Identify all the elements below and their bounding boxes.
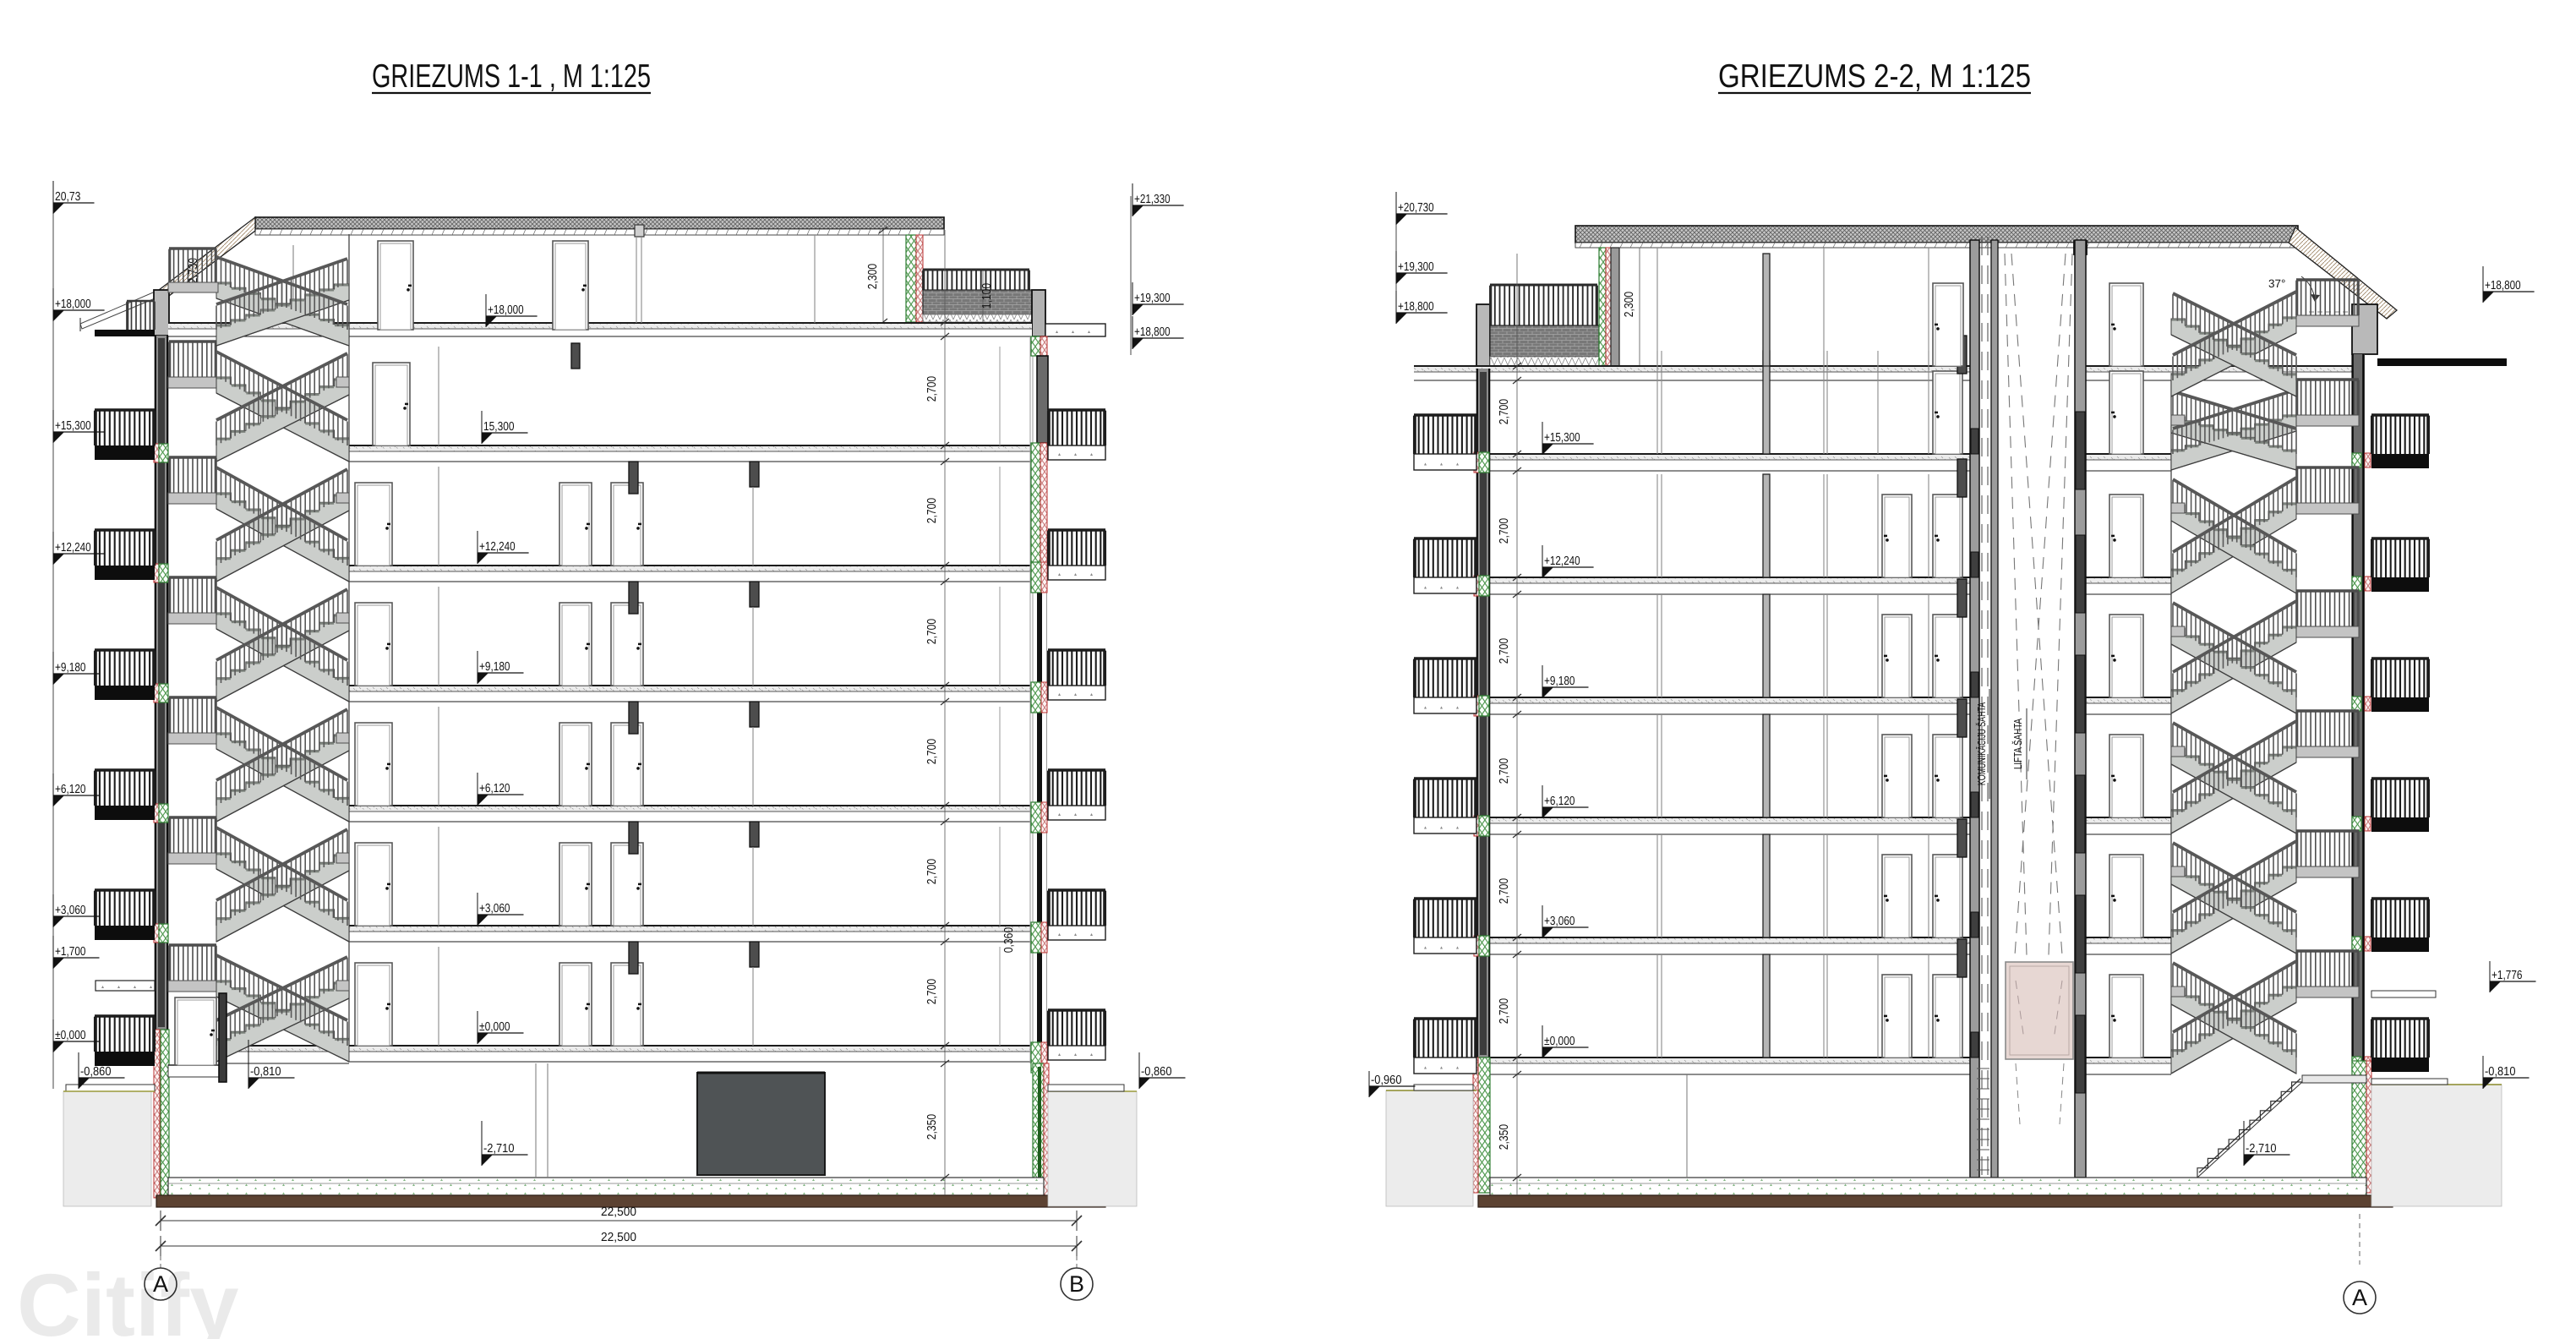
svg-text:▴: ▴ [1074,572,1077,577]
svg-text:-0,860: -0,860 [80,1065,112,1079]
svg-text:+3,060: +3,060 [1544,915,1575,928]
svg-text:▴: ▴ [1058,572,1061,577]
svg-text:37°: 37° [2268,277,2285,290]
svg-text:22,500: 22,500 [601,1231,636,1244]
svg-text:-2,710: -2,710 [483,1142,515,1156]
svg-text:KOMUNIKĀCIJU ŠAHTA: KOMUNIKĀCIJU ŠAHTA [1975,702,1988,786]
svg-text:+18,000: +18,000 [55,298,91,311]
svg-text:+15,300: +15,300 [1544,431,1580,445]
svg-text:2,700: 2,700 [925,859,939,884]
svg-text:2,700: 2,700 [1498,638,1511,664]
svg-text:2,700: 2,700 [925,739,939,764]
svg-text:▴: ▴ [1456,1066,1459,1071]
svg-text:▴: ▴ [1424,1066,1427,1071]
svg-text:2,700: 2,700 [925,619,939,644]
svg-text:2,700: 2,700 [1498,998,1511,1024]
svg-text:▴: ▴ [1074,692,1077,697]
svg-text:▴: ▴ [1090,1052,1093,1058]
svg-text:2,700: 2,700 [925,979,939,1004]
svg-text:2,350: 2,350 [1498,1124,1511,1150]
svg-text:▴: ▴ [1058,932,1061,937]
svg-text:▴: ▴ [1440,1066,1443,1071]
svg-text:▴: ▴ [1058,812,1061,817]
svg-text:+1,776: +1,776 [2491,969,2523,982]
svg-text:▴: ▴ [101,985,104,990]
svg-text:+19,300: +19,300 [1398,260,1434,274]
svg-text:20,73: 20,73 [55,190,80,204]
svg-text:▴: ▴ [1440,946,1443,951]
svg-text:▴: ▴ [134,985,136,990]
svg-text:▴: ▴ [1074,812,1077,817]
svg-text:▴: ▴ [1424,946,1427,951]
svg-text:GRIEZUMS 2-2, M 1:125: GRIEZUMS 2-2, M 1:125 [1718,58,2031,95]
svg-text:+19,300: +19,300 [1134,292,1171,305]
svg-text:▴: ▴ [1456,826,1459,831]
svg-text:▴: ▴ [1058,692,1061,697]
svg-text:▴: ▴ [1440,462,1443,467]
svg-text:-0,860: -0,860 [1141,1065,1172,1079]
svg-text:+9,180: +9,180 [1544,675,1575,688]
svg-text:▴: ▴ [1056,330,1058,335]
svg-text:▴: ▴ [1424,462,1427,467]
svg-text:▴: ▴ [1058,1052,1061,1058]
svg-text:2,739: 2,739 [187,258,200,283]
svg-text:▴: ▴ [1456,462,1459,467]
svg-text:▴: ▴ [1090,932,1093,937]
svg-text:▴: ▴ [117,985,120,990]
svg-text:+21,330: +21,330 [1134,193,1171,206]
svg-text:▴: ▴ [1090,812,1093,817]
svg-text:2,700: 2,700 [1498,878,1511,904]
svg-text:▴: ▴ [150,985,152,990]
svg-text:▴: ▴ [1456,706,1459,711]
svg-text:2,300: 2,300 [1623,292,1636,317]
svg-text:-0,810: -0,810 [250,1065,281,1079]
svg-text:15,300: 15,300 [483,420,515,434]
svg-text:▴: ▴ [1440,706,1443,711]
svg-text:2,700: 2,700 [925,376,939,402]
svg-text:▴: ▴ [1424,586,1427,591]
svg-text:+18,000: +18,000 [488,303,524,317]
svg-text:▴: ▴ [1456,946,1459,951]
svg-text:▴: ▴ [1424,826,1427,831]
svg-text:▴: ▴ [1090,452,1093,457]
svg-text:+15,300: +15,300 [55,419,91,433]
svg-text:0,360: 0,360 [1002,927,1016,953]
svg-text:+6,120: +6,120 [55,783,86,796]
svg-text:▴: ▴ [1440,826,1443,831]
svg-text:+18,800: +18,800 [2485,279,2521,292]
svg-text:▴: ▴ [1074,452,1077,457]
svg-text:2,700: 2,700 [1498,758,1511,784]
svg-text:▴: ▴ [1440,586,1443,591]
svg-text:-0,810: -0,810 [2485,1065,2516,1079]
svg-text:A: A [2352,1285,2367,1310]
svg-text:▴: ▴ [1074,1052,1077,1058]
svg-text:GRIEZUMS 1-1 , M 1:125: GRIEZUMS 1-1 , M 1:125 [372,58,651,95]
svg-text:2,700: 2,700 [925,498,939,523]
svg-text:2,700: 2,700 [1498,399,1511,424]
svg-text:▴: ▴ [1424,706,1427,711]
svg-text:+3,060: +3,060 [479,902,510,915]
svg-text:+3,060: +3,060 [55,904,86,917]
svg-text:±0,000: ±0,000 [55,1029,86,1042]
svg-text:±0,000: ±0,000 [1544,1035,1575,1048]
svg-text:▴: ▴ [1090,692,1093,697]
svg-text:2,300: 2,300 [866,264,880,289]
svg-text:▴: ▴ [1090,572,1093,577]
svg-text:2,350: 2,350 [925,1114,939,1140]
svg-text:▴: ▴ [1058,452,1061,457]
svg-text:B: B [1069,1271,1084,1297]
svg-text:▴: ▴ [1456,586,1459,591]
svg-text:-2,710: -2,710 [2246,1142,2277,1156]
svg-text:▴: ▴ [1072,330,1074,335]
svg-text:+18,800: +18,800 [1398,300,1434,314]
svg-text:+6,120: +6,120 [479,782,510,795]
svg-text:+12,240: +12,240 [1544,555,1580,568]
svg-text:▴: ▴ [1074,932,1077,937]
svg-text:+1,700: +1,700 [55,945,86,959]
svg-text:1,100: 1,100 [980,283,994,309]
svg-text:+20,730: +20,730 [1398,201,1434,215]
svg-text:+6,120: +6,120 [1544,795,1575,808]
svg-text:+9,180: +9,180 [479,660,510,674]
svg-text:Citify: Citify [17,1256,239,1339]
svg-text:±0,000: ±0,000 [479,1020,510,1034]
svg-text:+12,240: +12,240 [479,540,516,554]
svg-text:+9,180: +9,180 [55,661,86,675]
svg-text:+18,800: +18,800 [1134,325,1171,339]
svg-text:+12,240: +12,240 [55,541,91,555]
svg-text:2,700: 2,700 [1498,518,1511,544]
svg-text:LIFTA ŠAHTA: LIFTA ŠAHTA [2011,719,2024,769]
svg-text:-0,960: -0,960 [1371,1074,1402,1087]
svg-text:▴: ▴ [1088,330,1090,335]
svg-text:22,500: 22,500 [601,1205,636,1219]
